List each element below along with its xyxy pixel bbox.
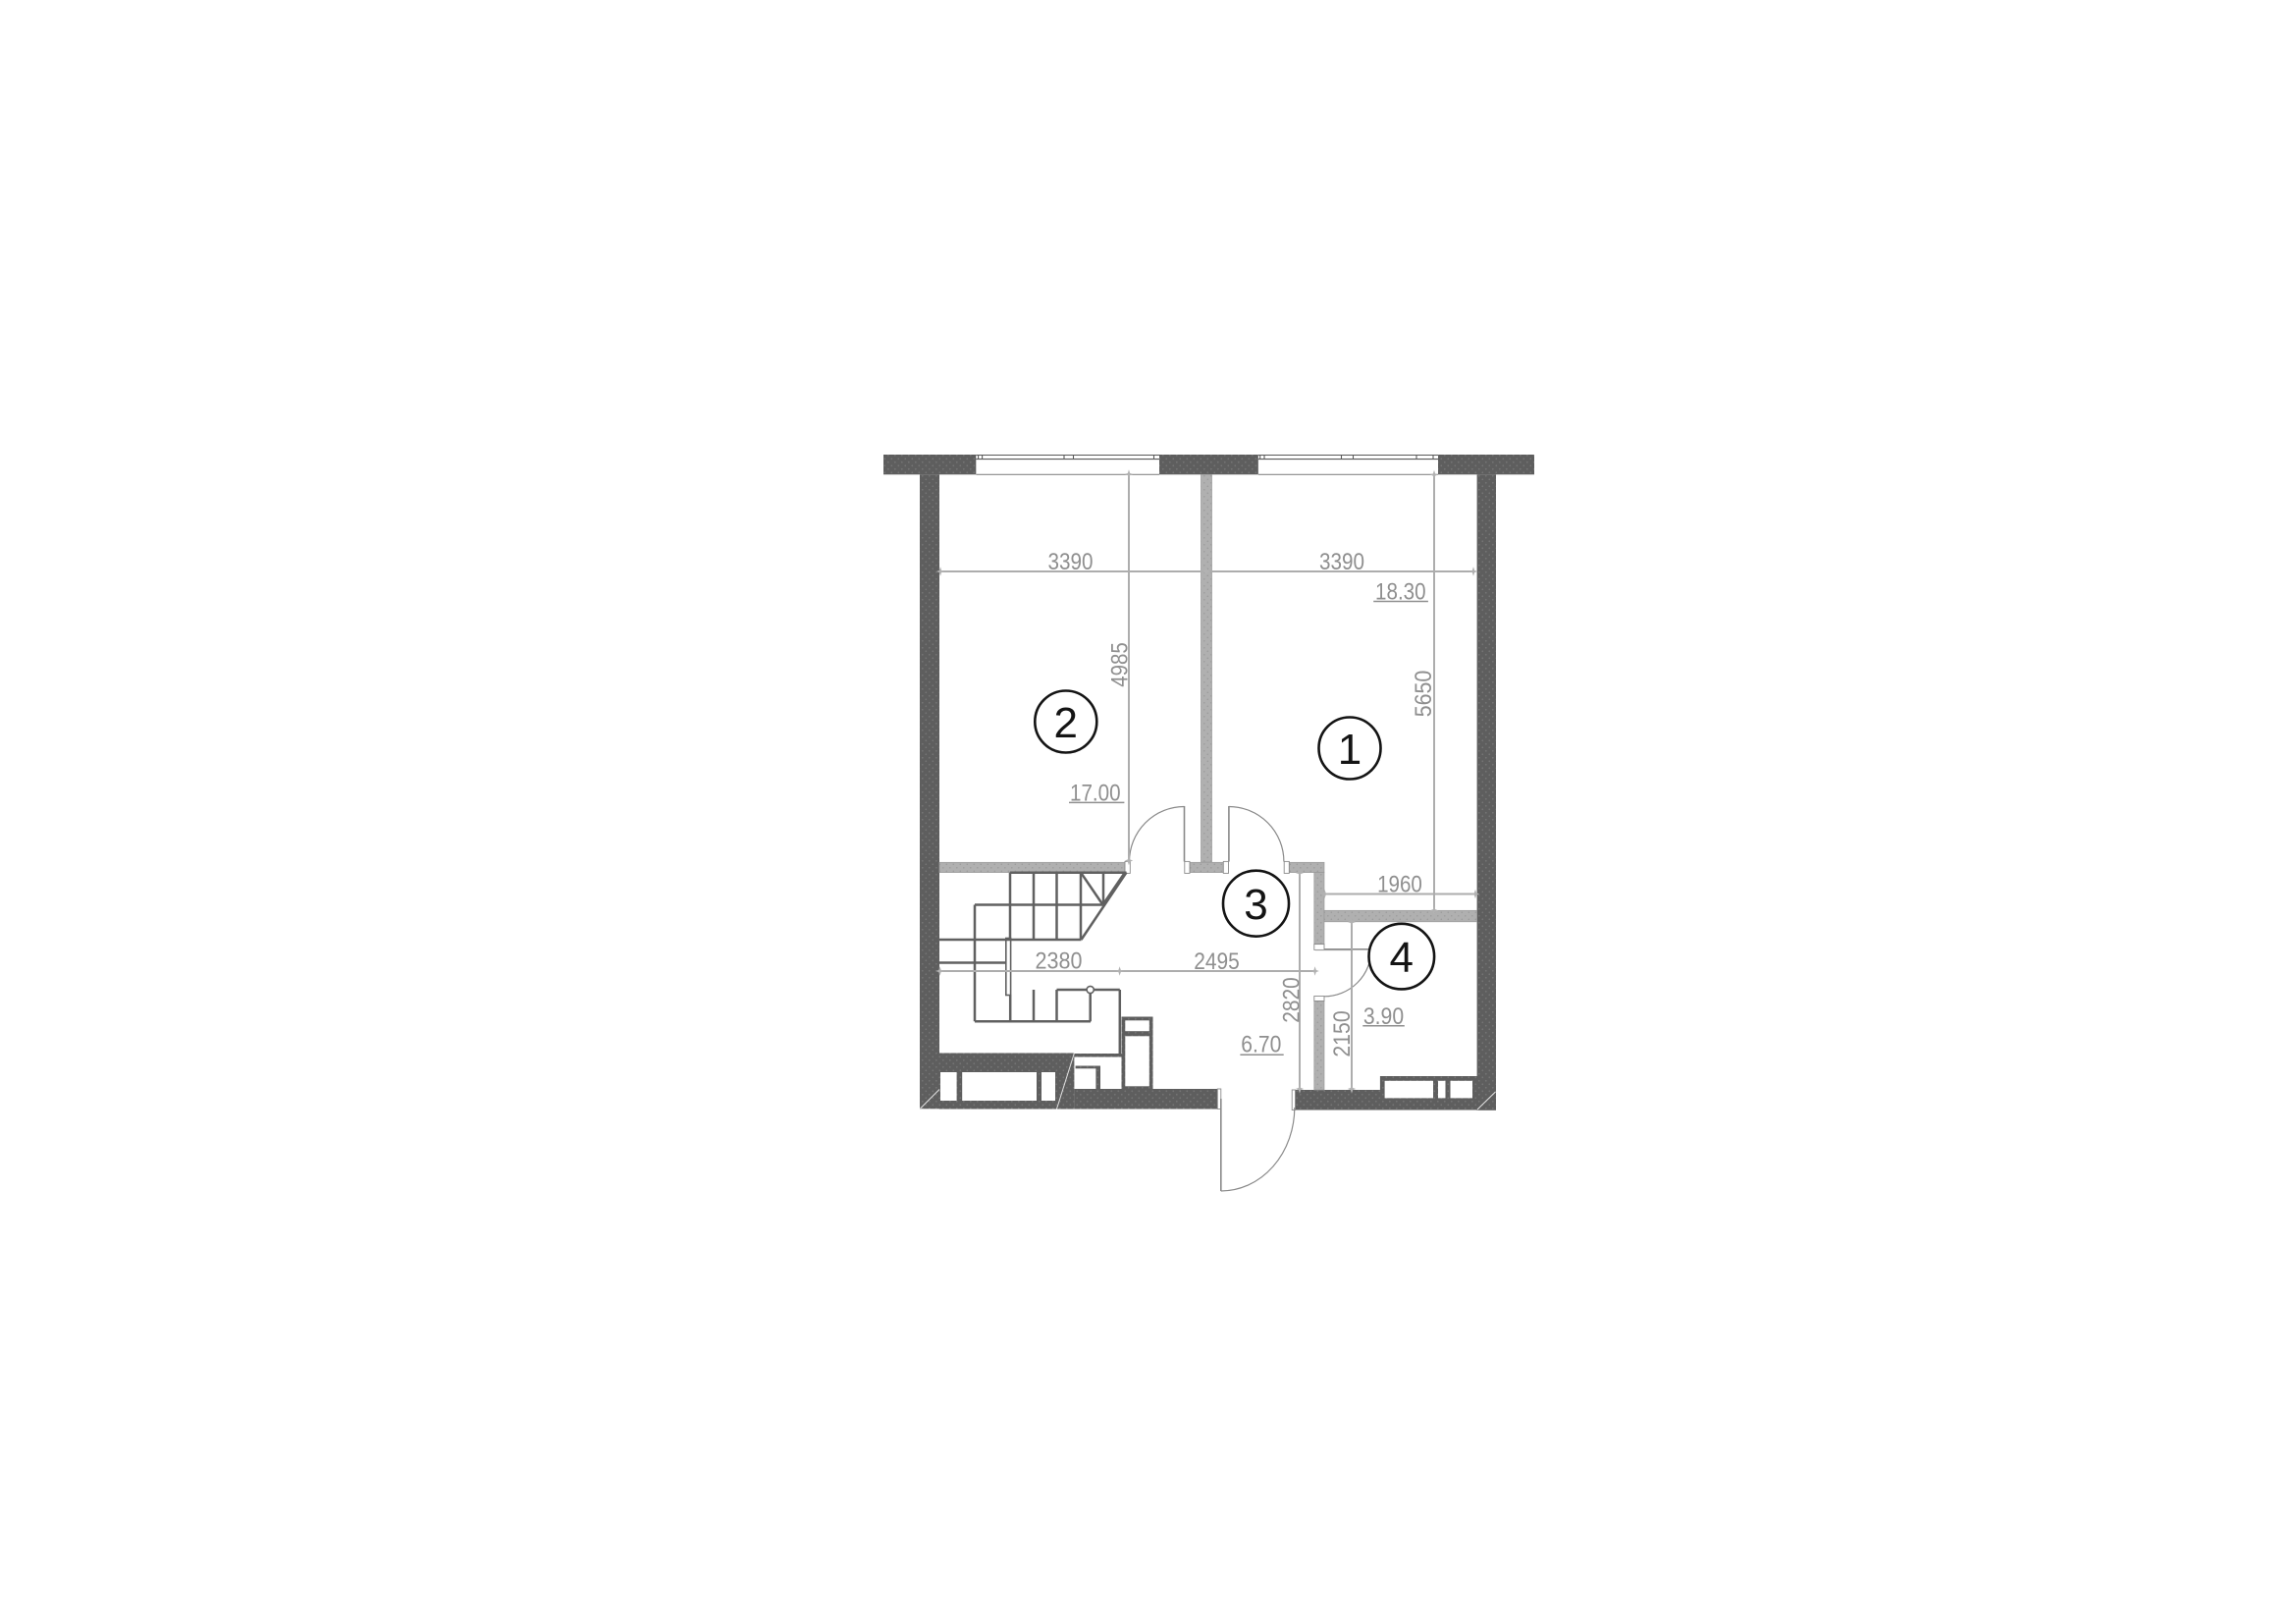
- svg-text:2380: 2380: [1036, 948, 1083, 975]
- svg-text:1: 1: [1338, 726, 1362, 774]
- svg-text:2820: 2820: [1278, 977, 1305, 1023]
- svg-text:4985: 4985: [1106, 642, 1133, 687]
- svg-text:5650: 5650: [1411, 671, 1437, 718]
- svg-text:3390: 3390: [1319, 549, 1364, 575]
- svg-text:2150: 2150: [1329, 1010, 1356, 1056]
- svg-text:4: 4: [1390, 934, 1414, 982]
- svg-text:3390: 3390: [1048, 549, 1094, 575]
- svg-text:2495: 2495: [1194, 948, 1240, 975]
- svg-text:6.70: 6.70: [1241, 1032, 1281, 1058]
- svg-text:3: 3: [1244, 881, 1267, 929]
- svg-text:1960: 1960: [1377, 872, 1422, 898]
- svg-text:2: 2: [1054, 699, 1078, 747]
